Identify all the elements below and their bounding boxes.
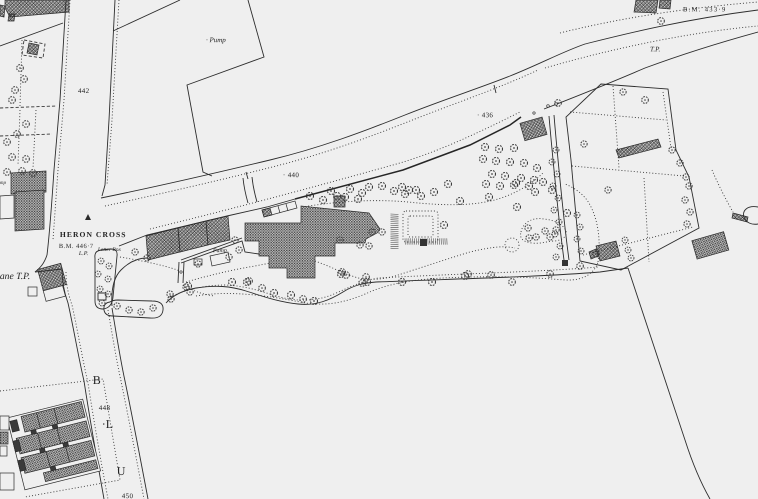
svg-text:L.P.: L.P. [78,251,88,257]
svg-text:Letter Box: Letter Box [97,247,122,253]
svg-text:HERON CROSS: HERON CROSS [60,230,127,239]
svg-text:T.P.: T.P. [650,45,661,53]
svg-text:ane T.P.: ane T.P. [0,271,30,282]
svg-text:· Pump: · Pump [206,36,226,44]
svg-text:· 436: · 436 [477,111,493,119]
svg-text:448: 448 [99,404,111,412]
svg-text:B.M. 446·7: B.M. 446·7 [59,243,94,250]
svg-text:442: 442 [78,87,90,95]
svg-text:450: 450 [122,492,134,499]
svg-text:Pump: Pump [212,248,227,254]
svg-text:· 440: · 440 [283,171,299,179]
svg-text:B: B [93,373,101,387]
svg-text:U: U [117,464,126,478]
svg-text:B.M. 433·9: B.M. 433·9 [683,6,727,13]
svg-text:mp: mp [0,181,7,186]
svg-text:·L: ·L [102,417,113,431]
